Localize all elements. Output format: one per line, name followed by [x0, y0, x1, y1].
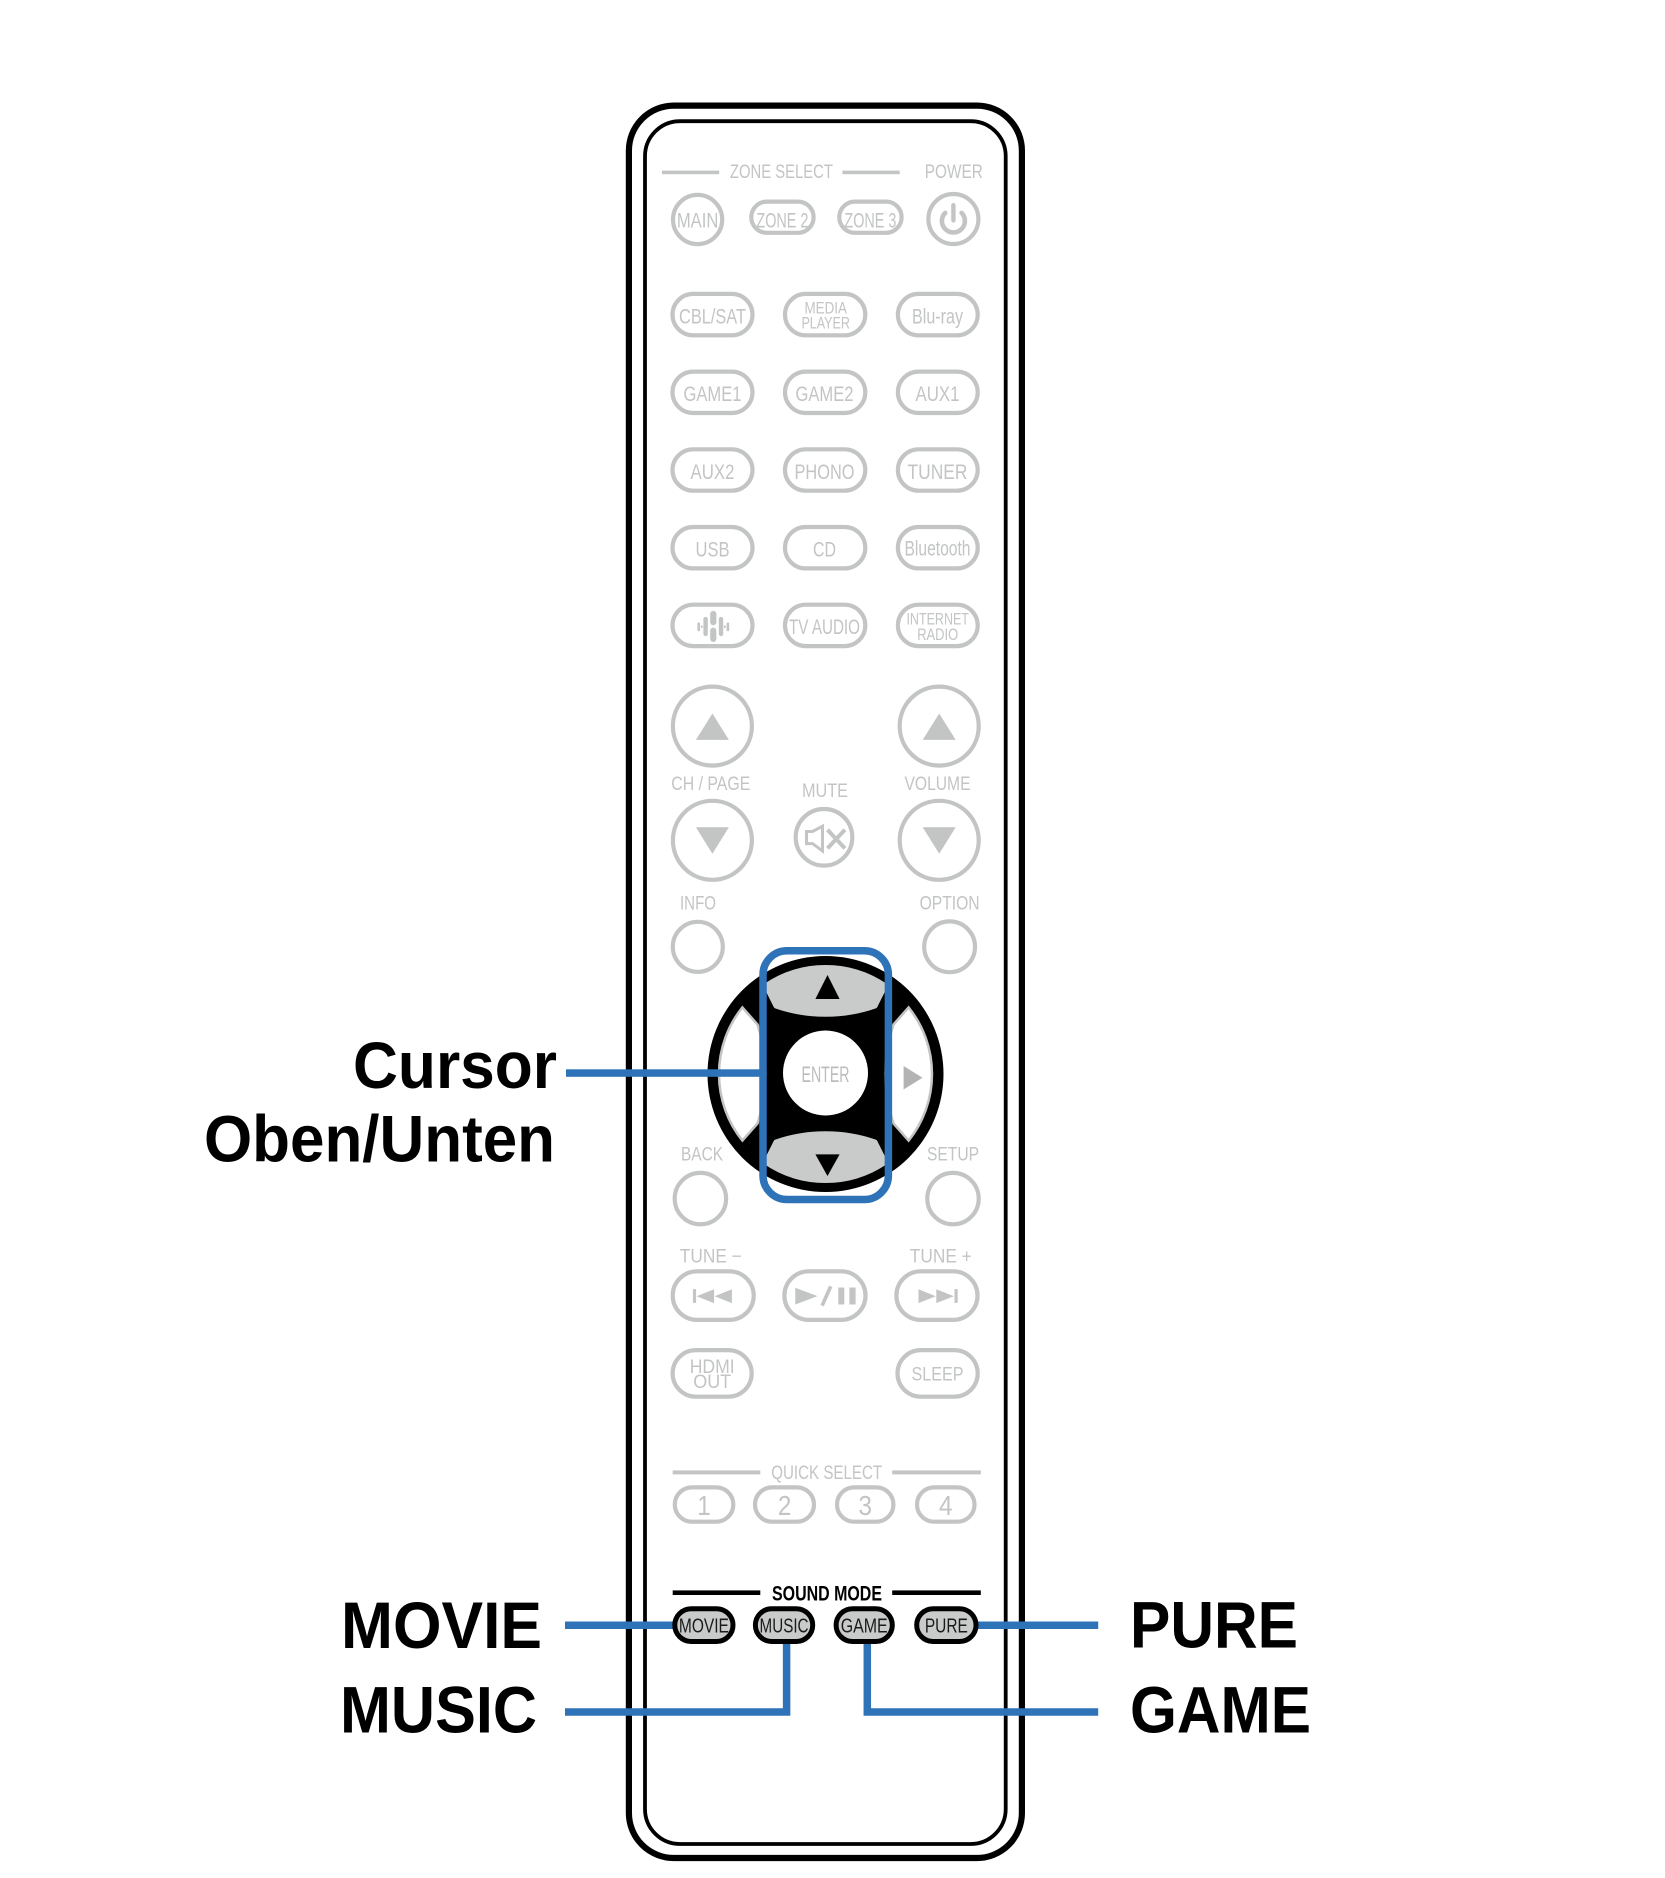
- svg-text:OPTION: OPTION: [920, 894, 980, 915]
- svg-text:TUNER: TUNER: [908, 460, 968, 484]
- svg-text:MUSIC: MUSIC: [760, 1615, 809, 1637]
- svg-text:3: 3: [858, 1490, 872, 1521]
- svg-text:CD: CD: [813, 538, 836, 562]
- svg-text:PURE: PURE: [1130, 1588, 1298, 1662]
- svg-text:Oben/Unten: Oben/Unten: [204, 1102, 555, 1176]
- svg-text:GAME2: GAME2: [796, 382, 854, 406]
- svg-text:AUX1: AUX1: [916, 382, 960, 406]
- svg-text:ZONE SELECT: ZONE SELECT: [730, 162, 833, 183]
- svg-text:CH / PAGE: CH / PAGE: [671, 774, 750, 795]
- svg-text:PHONO: PHONO: [795, 460, 855, 484]
- svg-text:Cursor: Cursor: [353, 1028, 557, 1102]
- svg-text:PLAYER: PLAYER: [801, 314, 850, 333]
- svg-text:PURE: PURE: [925, 1615, 968, 1637]
- svg-text:OUT: OUT: [693, 1371, 731, 1393]
- svg-text:TUNE +: TUNE +: [910, 1247, 972, 1268]
- svg-text:SOUND MODE: SOUND MODE: [772, 1582, 882, 1605]
- svg-text:CBL/SAT: CBL/SAT: [679, 304, 746, 328]
- svg-text:Bluetooth: Bluetooth: [905, 538, 971, 561]
- svg-text:MOVIE: MOVIE: [679, 1615, 729, 1637]
- svg-text:1: 1: [697, 1490, 711, 1521]
- svg-text:MUTE: MUTE: [802, 781, 848, 802]
- svg-text:Blu-ray: Blu-ray: [912, 304, 963, 328]
- svg-text:MUSIC: MUSIC: [340, 1673, 537, 1747]
- svg-text:SETUP: SETUP: [927, 1144, 979, 1165]
- svg-text:BACK: BACK: [681, 1144, 723, 1165]
- svg-text:2: 2: [778, 1490, 792, 1521]
- svg-text:AUX2: AUX2: [691, 460, 735, 484]
- svg-text:VOLUME: VOLUME: [905, 774, 971, 795]
- svg-text:POWER: POWER: [925, 162, 983, 183]
- svg-text:USB: USB: [696, 538, 730, 562]
- svg-text:SLEEP: SLEEP: [912, 1364, 964, 1386]
- svg-text:TV AUDIO: TV AUDIO: [789, 615, 860, 639]
- svg-text:GAME1: GAME1: [684, 382, 742, 406]
- svg-text:ZONE 2: ZONE 2: [756, 209, 808, 233]
- svg-text:MOVIE: MOVIE: [341, 1588, 542, 1662]
- svg-text:4: 4: [939, 1490, 953, 1521]
- svg-text:GAME: GAME: [841, 1615, 888, 1637]
- svg-text:ENTER: ENTER: [802, 1062, 850, 1087]
- svg-text:INFO: INFO: [680, 894, 716, 915]
- svg-text:RADIO: RADIO: [917, 625, 958, 644]
- svg-text:ZONE 3: ZONE 3: [844, 209, 896, 233]
- svg-text:MAIN: MAIN: [677, 209, 719, 233]
- svg-text:QUICK SELECT: QUICK SELECT: [771, 1462, 882, 1484]
- svg-text:TUNE −: TUNE −: [680, 1247, 742, 1268]
- svg-text:GAME: GAME: [1130, 1673, 1311, 1747]
